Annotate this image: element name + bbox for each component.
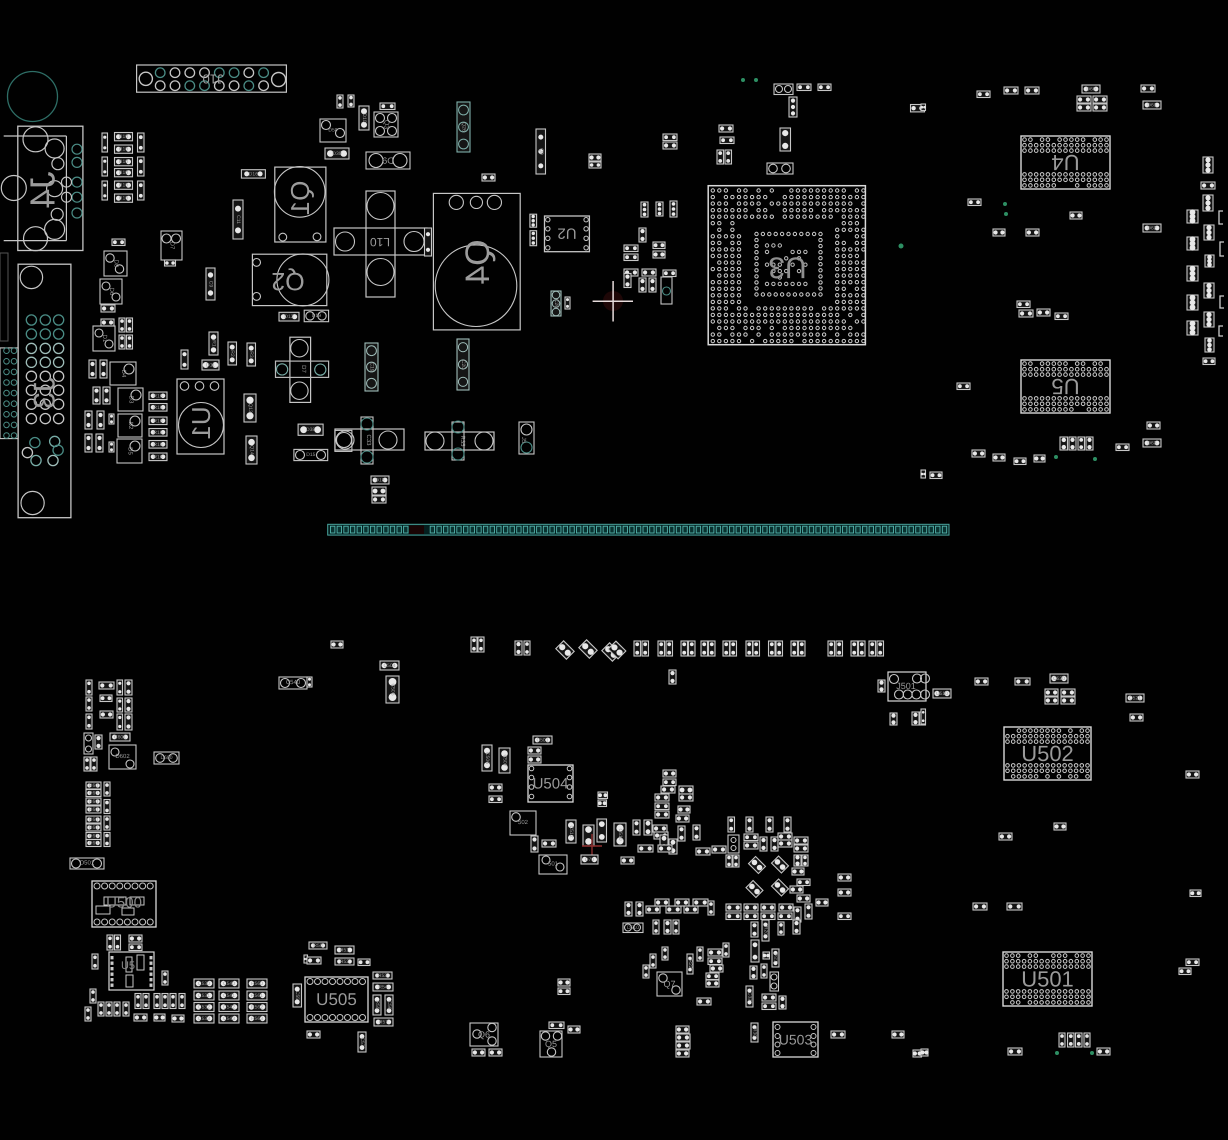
svg-text:C505: C505 [390, 684, 396, 696]
svg-text:C501: C501 [537, 738, 549, 744]
svg-text:C542: C542 [223, 1005, 235, 1011]
svg-text:R21: R21 [773, 953, 779, 962]
svg-text:R10: R10 [119, 159, 128, 165]
svg-text:U501: U501 [1021, 967, 1074, 992]
svg-text:C507: C507 [502, 755, 508, 767]
svg-text:R1: R1 [211, 340, 217, 347]
svg-text:R53: R53 [378, 973, 387, 979]
svg-text:R16: R16 [153, 442, 162, 448]
svg-text:R10: R10 [119, 183, 128, 189]
svg-text:D8: D8 [113, 260, 120, 268]
svg-text:C57: C57 [359, 1037, 365, 1046]
svg-text:502: 502 [518, 819, 529, 826]
svg-text:R3: R3 [248, 351, 254, 358]
svg-text:R562: R562 [251, 1005, 263, 1011]
svg-text:C541: C541 [223, 993, 235, 999]
svg-text:D1: D1 [101, 335, 108, 343]
svg-text:R10: R10 [119, 134, 128, 140]
svg-text:C512: C512 [568, 826, 574, 838]
svg-text:C19: C19 [369, 362, 375, 371]
svg-text:R16: R16 [153, 454, 162, 460]
svg-text:Q14: Q14 [249, 445, 255, 455]
svg-text:D2: D2 [127, 422, 134, 430]
svg-text:C26: C26 [553, 299, 559, 308]
svg-text:C532: C532 [198, 1005, 210, 1011]
svg-text:D50: D50 [328, 128, 337, 134]
svg-text:L10: L10 [370, 235, 390, 249]
svg-text:D3: D3 [128, 396, 135, 404]
svg-text:D9: D9 [382, 156, 394, 166]
svg-text:C521: C521 [1129, 696, 1141, 702]
svg-text:C506: C506 [484, 752, 490, 764]
svg-text:R60: R60 [89, 807, 98, 813]
svg-text:D18: D18 [375, 478, 384, 484]
svg-text:U1: U1 [186, 406, 216, 439]
svg-text:D30: D30 [332, 151, 341, 157]
svg-text:C56: C56 [386, 1000, 392, 1009]
svg-text:U2: U2 [557, 225, 576, 242]
svg-text:D7: D7 [169, 242, 176, 250]
svg-text:U5: U5 [1051, 374, 1079, 399]
svg-text:Q5: Q5 [545, 1039, 557, 1049]
svg-text:D501: D501 [80, 860, 95, 867]
svg-text:U502: U502 [1021, 741, 1074, 766]
svg-text:R30: R30 [752, 1028, 758, 1037]
svg-text:R2: R2 [229, 350, 235, 357]
svg-text:C520: C520 [1053, 676, 1065, 682]
svg-text:J10: J10 [203, 72, 224, 87]
svg-text:Q7: Q7 [663, 979, 675, 989]
svg-text:R16: R16 [153, 405, 162, 411]
svg-text:R10: R10 [119, 147, 128, 153]
svg-text:R563: R563 [251, 1016, 263, 1022]
svg-text:Q2: Q2 [271, 267, 304, 295]
svg-text:R16: R16 [153, 393, 162, 399]
svg-text:C11: C11 [235, 215, 241, 224]
svg-text:J3: J3 [29, 377, 62, 409]
svg-text:Q13: Q13 [247, 403, 253, 413]
svg-text:R60: R60 [89, 817, 98, 823]
svg-text:C543: C543 [223, 1016, 235, 1022]
svg-text:D19: D19 [312, 313, 321, 319]
svg-text:R10: R10 [119, 170, 128, 176]
svg-text:U500: U500 [106, 895, 142, 912]
svg-text:D600: D600 [161, 755, 173, 761]
svg-text:U510: U510 [936, 691, 948, 697]
svg-text:C504: C504 [384, 663, 396, 669]
svg-text:R55: R55 [374, 1000, 380, 1009]
svg-text:R54: R54 [378, 985, 387, 991]
svg-text:C540: C540 [223, 981, 235, 987]
svg-text:U505: U505 [316, 990, 357, 1009]
svg-text:R22: R22 [687, 959, 693, 968]
svg-text:D4: D4 [120, 370, 127, 378]
svg-text:R60: R60 [89, 791, 98, 797]
svg-text:501: 501 [548, 861, 559, 868]
svg-text:J4: J4 [24, 172, 63, 209]
svg-text:Q6: Q6 [478, 1030, 490, 1040]
svg-text:D10: D10 [361, 113, 367, 122]
svg-text:D602: D602 [115, 753, 130, 760]
svg-text:R60: R60 [89, 834, 98, 840]
svg-text:R60: R60 [89, 799, 98, 805]
svg-text:R60: R60 [89, 783, 98, 789]
svg-text:D6: D6 [108, 288, 115, 296]
svg-text:D7: D7 [300, 365, 307, 373]
svg-text:R35: R35 [459, 435, 466, 447]
svg-text:D60: D60 [1086, 87, 1095, 93]
svg-text:C601: C601 [114, 735, 126, 741]
svg-text:R10: R10 [119, 196, 128, 202]
svg-text:R16: R16 [153, 418, 162, 424]
svg-text:J501: J501 [896, 681, 916, 691]
svg-text:U4: U4 [1051, 150, 1079, 175]
svg-text:D11: D11 [206, 363, 215, 369]
svg-text:D70: D70 [585, 857, 594, 863]
svg-text:R50: R50 [313, 943, 322, 949]
svg-text:Q1: Q1 [285, 181, 315, 216]
svg-text:R560: R560 [251, 981, 263, 987]
svg-text:R51: R51 [340, 948, 349, 954]
svg-text:C20: C20 [460, 360, 466, 369]
svg-text:R57: R57 [379, 1020, 388, 1026]
svg-text:C530: C530 [198, 981, 210, 987]
svg-text:J5: J5 [520, 437, 527, 444]
svg-text:U504: U504 [533, 776, 569, 793]
svg-text:Q4: Q4 [459, 239, 497, 284]
svg-text:D62: D62 [1147, 226, 1156, 232]
svg-text:R52: R52 [340, 959, 349, 965]
svg-text:R16: R16 [153, 430, 162, 436]
svg-text:Q3: Q3 [383, 120, 390, 129]
svg-text:C32: C32 [747, 992, 753, 1001]
svg-text:C55: C55 [294, 991, 300, 1000]
svg-text:C33: C33 [365, 434, 372, 446]
svg-text:Q26: Q26 [461, 122, 467, 132]
svg-text:U3: U3 [768, 251, 806, 284]
svg-text:D38: D38 [306, 427, 315, 433]
svg-text:C540: C540 [286, 679, 301, 686]
svg-text:U5: U5 [121, 960, 135, 972]
svg-text:D13: D13 [284, 314, 293, 320]
svg-text:C531: C531 [198, 993, 210, 999]
svg-text:C510: C510 [617, 829, 623, 841]
svg-text:R20: R20 [763, 926, 769, 935]
svg-text:D15: D15 [306, 452, 315, 458]
svg-text:D61: D61 [1147, 103, 1156, 109]
svg-text:D63: D63 [1147, 441, 1156, 447]
svg-text:Q9: Q9 [538, 148, 544, 155]
svg-text:R561: R561 [251, 993, 263, 999]
svg-text:D5: D5 [127, 447, 134, 455]
svg-text:U503: U503 [779, 1032, 813, 1048]
svg-text:C533: C533 [198, 1016, 210, 1022]
svg-text:R60: R60 [89, 825, 98, 831]
svg-text:R60: R60 [89, 841, 98, 847]
svg-text:D510: D510 [627, 925, 639, 931]
svg-text:C9: C9 [208, 281, 214, 288]
svg-text:D16: D16 [249, 171, 258, 177]
